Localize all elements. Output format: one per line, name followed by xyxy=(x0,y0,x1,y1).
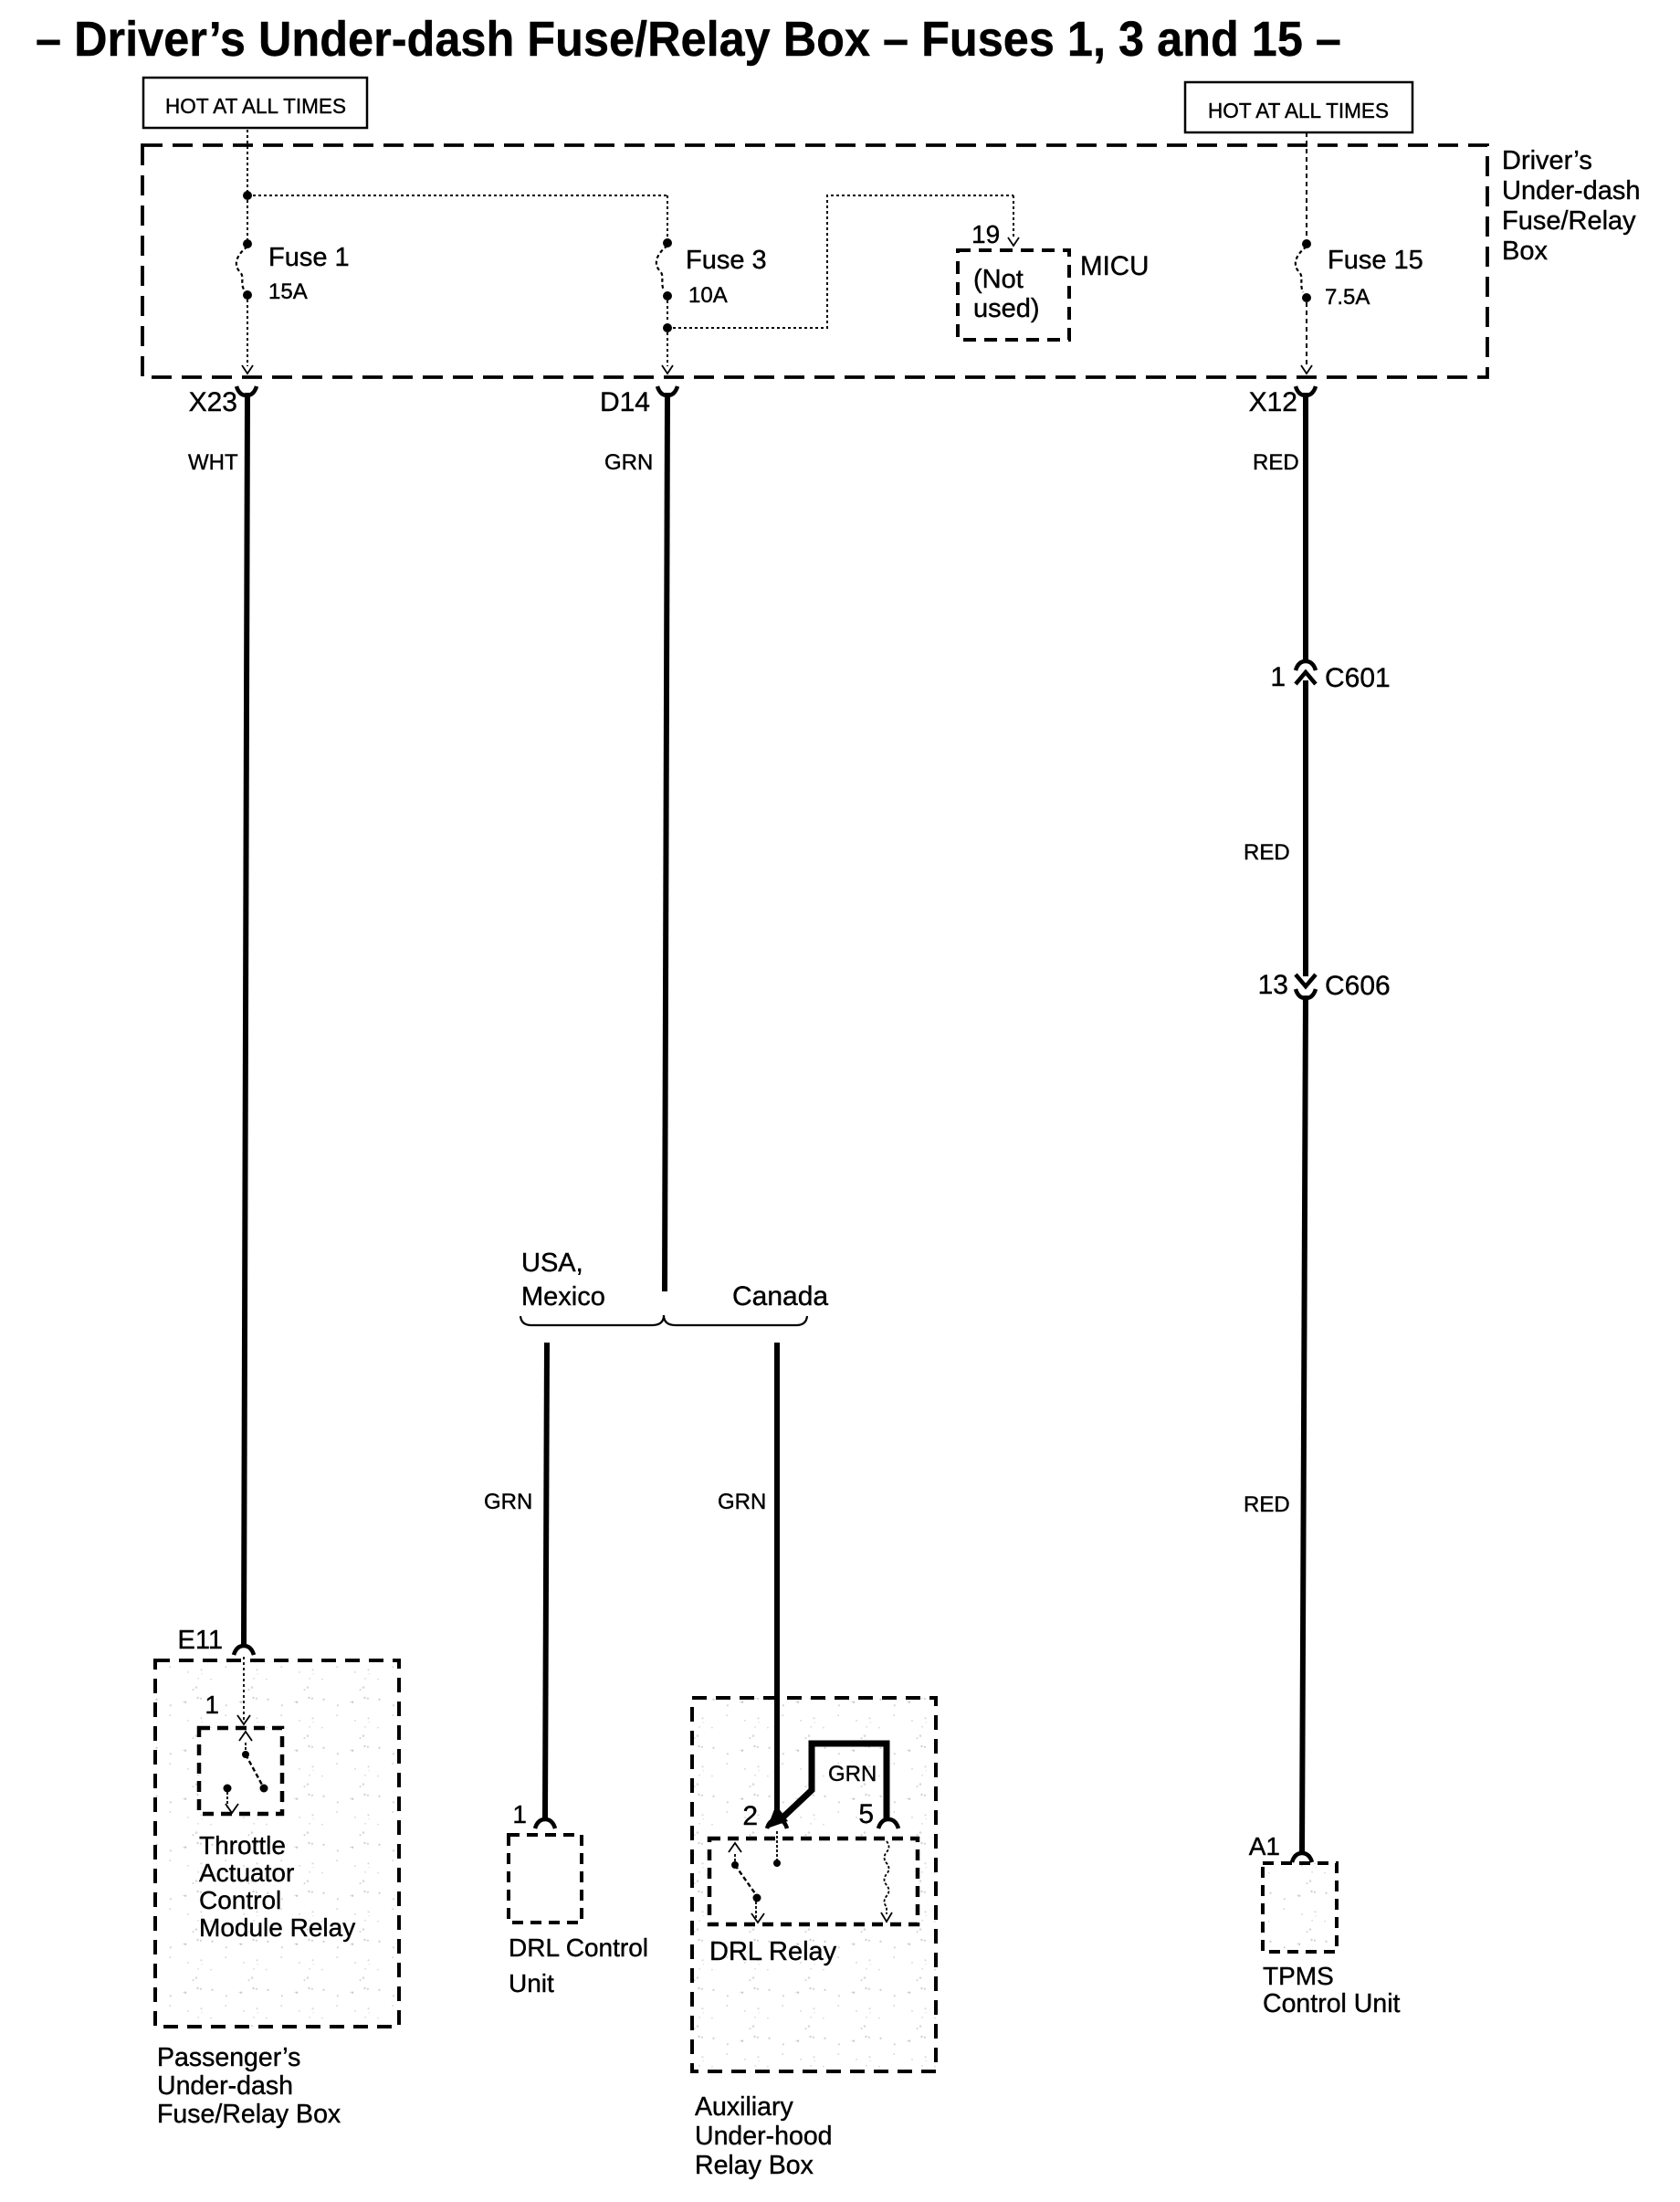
svg-text:Fuse 3: Fuse 3 xyxy=(686,246,767,275)
svg-text:X23: X23 xyxy=(189,387,237,417)
svg-text:C606: C606 xyxy=(1325,971,1391,1001)
svg-text:2: 2 xyxy=(742,1801,758,1831)
svg-text:RED: RED xyxy=(1244,840,1290,865)
svg-text:1: 1 xyxy=(512,1800,527,1828)
svg-text:– Driver’s Under-dash Fuse/Rel: – Driver’s Under-dash Fuse/Relay Box – F… xyxy=(36,12,1341,67)
svg-text:RED: RED xyxy=(1253,450,1299,475)
svg-text:Under-dash: Under-dash xyxy=(1502,176,1641,205)
svg-text:Fuse/Relay: Fuse/Relay xyxy=(1502,206,1636,236)
svg-text:5: 5 xyxy=(858,1799,874,1829)
svg-text:D14: D14 xyxy=(600,387,650,417)
svg-text:GRN: GRN xyxy=(828,1762,877,1786)
svg-text:used): used) xyxy=(973,294,1040,323)
svg-text:MICU: MICU xyxy=(1080,251,1149,281)
svg-text:DRL Control: DRL Control xyxy=(509,1933,648,1962)
svg-text:E11: E11 xyxy=(178,1626,223,1655)
svg-text:HOT AT ALL TIMES: HOT AT ALL TIMES xyxy=(1208,99,1389,122)
svg-text:1: 1 xyxy=(1270,662,1286,692)
svg-text:WHT: WHT xyxy=(188,450,238,475)
svg-text:7.5A: 7.5A xyxy=(1325,285,1370,310)
svg-text:Mexico: Mexico xyxy=(521,1282,605,1312)
svg-text:(Not: (Not xyxy=(973,265,1024,294)
svg-text:Module Relay: Module Relay xyxy=(199,1913,355,1942)
svg-text:Fuse 1: Fuse 1 xyxy=(268,243,350,272)
svg-text:C601: C601 xyxy=(1325,663,1391,693)
svg-text:Canada: Canada xyxy=(732,1281,828,1312)
svg-text:Control Unit: Control Unit xyxy=(1263,1989,1401,2018)
svg-text:19: 19 xyxy=(971,220,1000,248)
svg-text:HOT AT ALL TIMES: HOT AT ALL TIMES xyxy=(165,94,346,118)
svg-text:GRN: GRN xyxy=(484,1490,532,1514)
svg-text:Auxiliary: Auxiliary xyxy=(695,2092,793,2122)
svg-text:15A: 15A xyxy=(268,279,308,304)
svg-text:Passenger’s: Passenger’s xyxy=(157,2043,300,2072)
svg-text:10A: 10A xyxy=(688,283,728,308)
svg-text:Fuse/Relay Box: Fuse/Relay Box xyxy=(157,2100,341,2129)
svg-text:Under-hood: Under-hood xyxy=(695,2122,833,2151)
svg-text:A1: A1 xyxy=(1249,1832,1280,1860)
svg-text:USA,: USA, xyxy=(521,1249,583,1278)
svg-text:GRN: GRN xyxy=(604,450,653,475)
svg-text:RED: RED xyxy=(1244,1492,1290,1517)
svg-text:Unit: Unit xyxy=(509,1969,554,1997)
svg-text:Under-dash: Under-dash xyxy=(157,2071,293,2101)
svg-text:13: 13 xyxy=(1258,970,1288,1000)
svg-text:Box: Box xyxy=(1502,237,1548,266)
svg-text:1: 1 xyxy=(205,1691,219,1719)
svg-text:TPMS: TPMS xyxy=(1263,1962,1334,1990)
svg-text:Actuator: Actuator xyxy=(199,1859,294,1887)
svg-text:Control: Control xyxy=(199,1886,281,1914)
svg-text:X12: X12 xyxy=(1249,387,1297,417)
svg-text:Throttle: Throttle xyxy=(199,1831,286,1860)
svg-text:DRL Relay: DRL Relay xyxy=(709,1937,837,1966)
svg-text:GRN: GRN xyxy=(718,1490,766,1514)
svg-text:Relay Box: Relay Box xyxy=(695,2151,814,2180)
svg-text:Driver’s: Driver’s xyxy=(1502,146,1592,175)
svg-text:Fuse 15: Fuse 15 xyxy=(1328,246,1423,275)
